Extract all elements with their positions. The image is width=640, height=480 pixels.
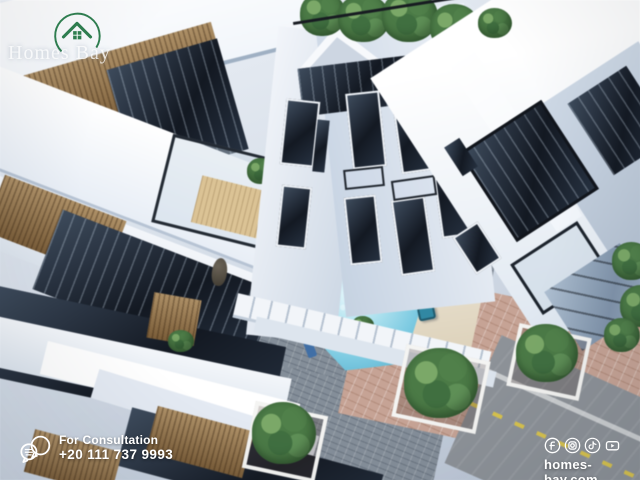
edge-tree: [604, 318, 640, 352]
marketing-poster: Homes Bay For Consultation +20 111 737 9…: [0, 0, 640, 480]
walkway-tree: [252, 402, 316, 464]
social-icons-row: [544, 437, 640, 454]
consultation-label: For Consultation: [59, 433, 173, 447]
brand-logo: Homes Bay: [6, 6, 126, 70]
edge-tree: [612, 242, 640, 280]
instagram-icon[interactable]: [564, 437, 581, 454]
website-link[interactable]: homes-bay.com: [544, 457, 640, 480]
brand-name: Homes Bay: [8, 42, 111, 65]
walkway-tree: [516, 324, 578, 382]
wall-plant: [168, 330, 194, 352]
walkway-tree: [404, 348, 478, 418]
footer-links-block: homes-bay.com: [544, 437, 640, 480]
youtube-icon[interactable]: [604, 437, 621, 454]
consultation-block: For Consultation +20 111 737 9993: [20, 433, 173, 466]
architecture-render: [0, 0, 640, 480]
tiktok-icon[interactable]: [584, 437, 601, 454]
balcony-railing: [343, 166, 385, 190]
chat-bubbles-icon: [20, 434, 52, 466]
consultation-phone: +20 111 737 9993: [59, 447, 173, 462]
roof-tree-small: [478, 8, 512, 38]
facebook-icon[interactable]: [544, 437, 561, 454]
